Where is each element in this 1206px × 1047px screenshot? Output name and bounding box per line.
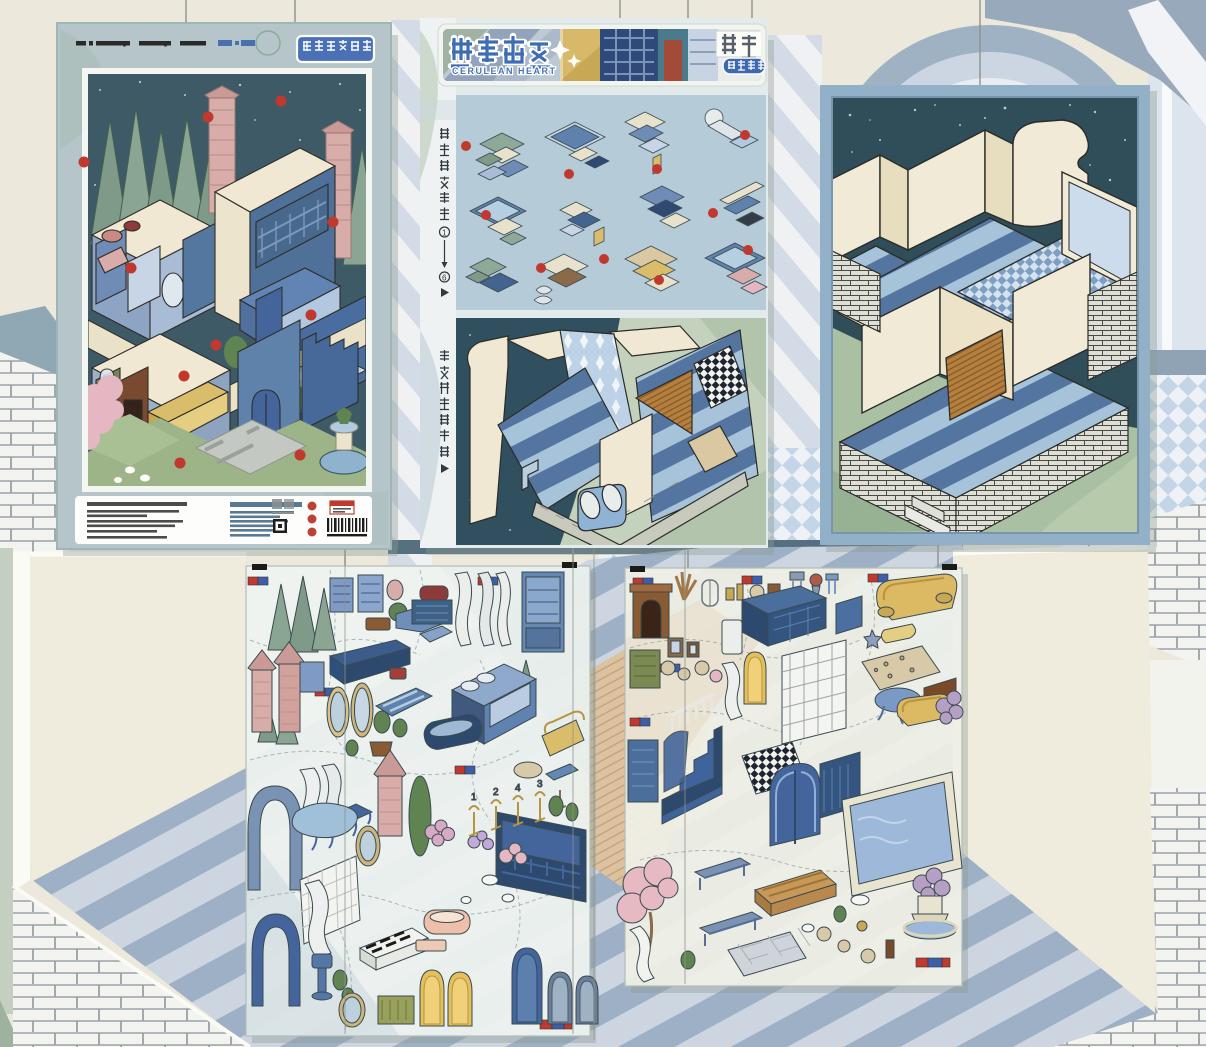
svg-text:2: 2 xyxy=(493,787,499,798)
svg-text:3: 3 xyxy=(537,779,543,790)
svg-text:1: 1 xyxy=(442,229,447,238)
svg-text:1: 1 xyxy=(471,792,477,803)
svg-text:CERULEAN HEART: CERULEAN HEART xyxy=(452,66,557,76)
svg-text:6: 6 xyxy=(442,274,447,283)
svg-text:4: 4 xyxy=(515,783,521,794)
